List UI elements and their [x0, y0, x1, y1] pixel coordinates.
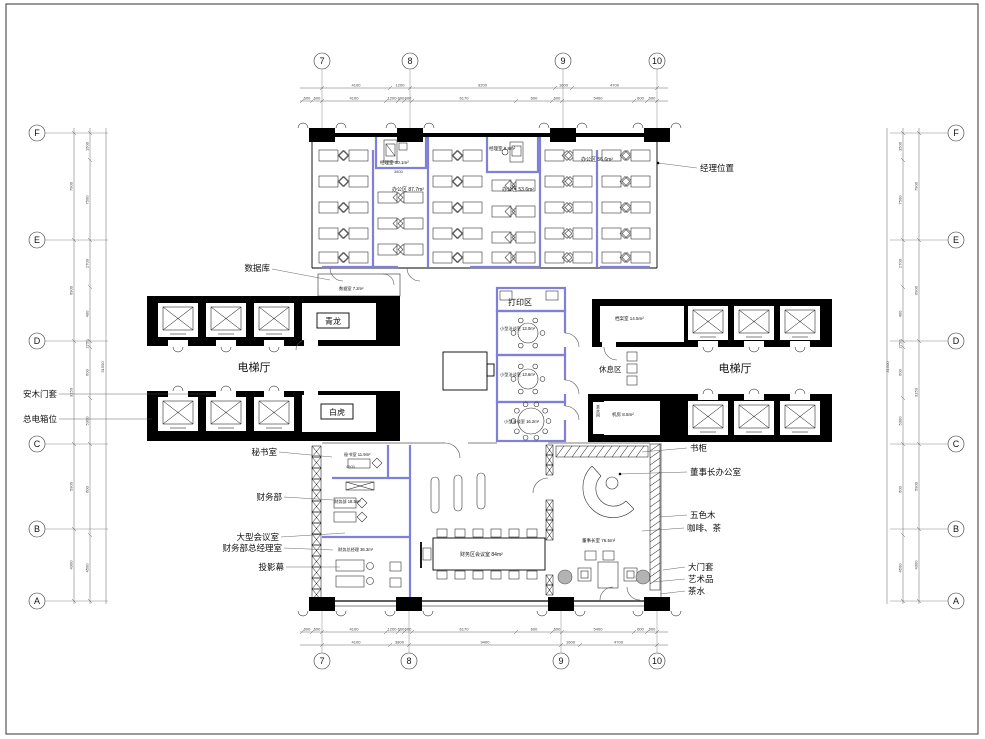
elevator-hall-left-label: 电梯厅 — [238, 361, 271, 374]
workstation-desk — [319, 228, 338, 239]
chair — [514, 408, 519, 413]
dimension-text: 3800 — [395, 640, 405, 645]
annotation: 投影幕 — [258, 562, 284, 572]
dimension-text: 9400 — [481, 640, 491, 645]
workstation-desk — [378, 218, 397, 229]
chair — [518, 318, 523, 323]
workstation-desk — [404, 218, 423, 229]
baihu-label: 白虎 — [329, 407, 345, 417]
workstation-desk — [602, 252, 621, 263]
door-swing — [386, 123, 396, 128]
grid-bubble-label: E — [34, 235, 40, 245]
artwork-icon — [636, 570, 650, 584]
leader-line — [642, 528, 684, 531]
hatch — [650, 570, 660, 577]
workstation-desk — [404, 244, 423, 255]
door-gap — [304, 340, 318, 346]
leader-line — [660, 591, 685, 594]
seat — [627, 376, 637, 385]
door-swing — [269, 347, 279, 352]
rest-area-label: 休息区 — [599, 364, 622, 374]
workstation-desk — [433, 150, 452, 161]
chair — [543, 429, 548, 434]
annotation: 大型会议室 — [236, 532, 279, 542]
chair — [453, 177, 463, 187]
dimension-text: 600 — [531, 627, 538, 632]
dimension-text: 7500 — [85, 195, 90, 205]
chair — [509, 571, 519, 579]
chair — [452, 253, 462, 263]
chair — [437, 529, 447, 537]
grid-bubble-label: 9 — [560, 56, 565, 66]
chair — [523, 435, 528, 440]
room-label: 档案室 14.5m² — [615, 315, 644, 322]
chair — [527, 529, 537, 537]
dimension-text: 2750 — [898, 339, 903, 349]
chair — [453, 253, 463, 263]
elevator-cell — [158, 397, 198, 431]
chair — [533, 343, 538, 348]
artwork-icon — [558, 570, 572, 584]
printer — [546, 291, 558, 300]
workstation-desk — [545, 150, 564, 161]
chair — [473, 529, 483, 537]
workstation-desk — [463, 176, 482, 187]
hatch — [650, 458, 660, 465]
elevator-hall-right-label: 电梯厅 — [719, 362, 752, 375]
dimension-text: 1600 — [566, 640, 576, 645]
room-label: 办公区 56.6m² — [581, 156, 613, 163]
workstation-desk — [492, 232, 511, 243]
grid-bubble-label: B — [953, 524, 959, 534]
hatch — [650, 528, 660, 535]
room-label: 小型洽谈室 16.2m² — [504, 418, 540, 425]
dimension-text: 600 — [531, 96, 538, 101]
dimension-text: 5900 — [914, 481, 919, 491]
seat — [627, 364, 637, 373]
dimension-text: 600 — [637, 96, 644, 101]
dimension-text: 1200 — [396, 83, 406, 88]
office-north-wall — [312, 133, 657, 137]
leader-line — [660, 515, 687, 517]
door-swing — [749, 389, 759, 394]
leader-line — [653, 579, 685, 582]
chair — [518, 343, 523, 348]
leader-line — [658, 163, 697, 168]
chair — [338, 229, 348, 239]
grid-bubble-label: C — [34, 439, 41, 449]
chair — [453, 151, 463, 161]
hatch — [650, 465, 660, 472]
chair — [399, 143, 407, 150]
workstation-desk — [349, 228, 368, 239]
dimension-text: 7900 — [914, 181, 919, 191]
grid-bubble-label: B — [34, 524, 40, 534]
chair — [452, 177, 462, 187]
hatch — [650, 493, 660, 500]
chair — [533, 389, 538, 394]
room-label: 经理室 8.8m² — [489, 145, 516, 151]
dimension-text: 600 — [314, 627, 321, 632]
door-swing — [385, 611, 395, 616]
annotation: 财务部总经理室 — [222, 543, 282, 553]
annotation: 财务部 — [256, 492, 282, 502]
door-swing — [633, 611, 643, 616]
meeting-room-1-walls — [497, 311, 565, 355]
workstation-desk — [349, 202, 368, 213]
armchair-cushion — [581, 571, 588, 578]
door-swing — [173, 347, 183, 352]
grid-bubble-label: 10 — [652, 656, 662, 666]
grid-bubble-label: 9 — [558, 656, 563, 666]
door-swing — [671, 611, 681, 616]
dimension-text: 4100 — [352, 83, 362, 88]
leader-dot — [657, 162, 660, 165]
hatch — [650, 514, 660, 521]
door-gap — [790, 341, 810, 347]
door-gap — [264, 340, 284, 347]
dimension-text: 3150 — [914, 387, 919, 397]
grid-bubble-label: F — [953, 128, 959, 138]
chair — [390, 578, 401, 587]
chair — [540, 377, 545, 382]
chair — [339, 151, 349, 161]
hatch — [650, 563, 660, 570]
dimension-text: 1600 — [559, 83, 569, 88]
annotation: 艺术品 — [688, 574, 714, 584]
door-gap — [698, 341, 718, 347]
chair — [603, 551, 614, 560]
dimension-text: 600 — [649, 96, 656, 101]
chair — [543, 408, 548, 413]
workstation-desk — [516, 206, 535, 217]
room-label: 财务部 18.5m² — [334, 498, 361, 505]
workstation-desk — [602, 228, 621, 239]
dimension-text: 2750 — [85, 339, 90, 349]
hatch — [650, 486, 660, 493]
workstation-desk — [433, 202, 452, 213]
meeting-room-2-walls — [497, 355, 565, 402]
elevator-cell — [734, 401, 774, 435]
dimension-text: 1500 — [898, 141, 903, 151]
door-swing — [173, 386, 183, 391]
workstation-desk — [545, 252, 564, 263]
hatch — [650, 549, 660, 556]
elevator-cell — [688, 401, 728, 435]
dimension-text: 4500 — [85, 563, 90, 573]
workstation-desk — [631, 228, 650, 239]
tea-room-label: 茶水间 — [596, 404, 601, 418]
grid-bubble-label: 8 — [407, 56, 412, 66]
chair — [338, 151, 348, 161]
column — [550, 128, 576, 142]
workstation-desk — [573, 202, 592, 213]
workstation-desk — [433, 252, 452, 263]
dimension-text: 3150 — [69, 387, 74, 397]
room-label: 小型洽谈室 13.6m² — [500, 371, 536, 378]
column — [396, 597, 422, 611]
door-arc — [533, 478, 548, 493]
workstation-desk — [319, 202, 338, 213]
annotation: 经理位置 — [700, 163, 735, 173]
workstation-desk — [631, 150, 650, 161]
workstation-desk — [349, 150, 368, 161]
dimension-text: 600 — [649, 627, 656, 632]
dimension-text: 600 — [304, 627, 311, 632]
grid-bubble-label: 8 — [406, 656, 411, 666]
elevator-cell — [688, 306, 728, 340]
dimension-text: 600 — [898, 368, 903, 375]
dimension-text: 4700 — [610, 83, 620, 88]
dimension-text: 600 — [304, 96, 311, 101]
dimension-text: 600 — [898, 485, 903, 492]
annotation: 茶水 — [688, 586, 706, 596]
machine-room — [604, 401, 660, 435]
annotation: 总电箱位 — [23, 414, 58, 424]
bookcase — [556, 446, 648, 457]
dimension-text: 400 — [85, 310, 90, 317]
chair — [452, 203, 462, 213]
door-gap — [216, 391, 236, 398]
dimension-text: 1200 — [388, 627, 398, 632]
annotation: 董事长办公室 — [690, 467, 742, 477]
annotation: 秘书室 — [251, 447, 277, 457]
dimension-text: 600 — [554, 627, 561, 632]
chair — [509, 529, 519, 537]
chair — [367, 563, 374, 570]
dimension-text: 4300 — [914, 560, 919, 570]
hatch — [650, 451, 660, 458]
annotation: 五色木 — [690, 510, 716, 520]
column — [644, 597, 670, 611]
door-swing — [671, 123, 681, 128]
annotation: 咖啡、茶 — [687, 523, 722, 533]
elevator-cell — [206, 397, 246, 431]
drawing-border — [6, 4, 978, 734]
workstation-desk — [545, 176, 564, 187]
desk — [336, 560, 364, 571]
door-swing — [703, 347, 713, 352]
dimension-text: 600 — [85, 368, 90, 375]
dimension-text: 9200 — [478, 83, 488, 88]
door-gap — [698, 394, 718, 400]
elevator-cell — [254, 303, 294, 337]
hatch — [650, 479, 660, 486]
door-swing — [423, 611, 433, 616]
dimension-text: 6170 — [460, 96, 470, 101]
room-label: 机房 8.5m² — [612, 411, 634, 418]
elevator-cell — [158, 303, 198, 337]
room-label: 经理室 10.1m² — [380, 159, 409, 165]
chair — [338, 177, 348, 187]
seat — [627, 352, 637, 361]
door-gap — [264, 391, 284, 398]
elevator-cell — [254, 397, 294, 431]
door-arc — [565, 333, 579, 347]
grid-bubble-label: 10 — [652, 56, 662, 66]
workstation-desk — [545, 228, 564, 239]
grid-bubble-label: A — [34, 596, 40, 606]
leader-line — [663, 567, 685, 570]
chair — [453, 229, 463, 239]
dimension-text: 2700 — [85, 258, 90, 268]
leader-dot — [619, 473, 622, 476]
hatch — [650, 577, 660, 584]
workstation-desk — [573, 176, 592, 187]
door-swing — [269, 386, 279, 391]
chair — [491, 571, 501, 579]
workstation-desk — [378, 244, 397, 255]
door-swing — [795, 347, 805, 352]
grid-bubble-label: 7 — [319, 656, 324, 666]
workstation-desk — [631, 202, 650, 213]
door-arc — [407, 268, 420, 281]
column — [397, 128, 423, 142]
dimension-text: 1200 — [388, 96, 398, 101]
workstation-desk — [378, 192, 397, 203]
room-label: 董事长室 76.5m² — [582, 537, 616, 544]
dimension-text: 6900 — [914, 285, 919, 295]
column — [644, 128, 670, 142]
grid-bubble-label: A — [953, 596, 959, 606]
dimension-text: 600 — [405, 627, 412, 632]
grid-bubble-label: 7 — [319, 56, 324, 66]
armchair-cushion — [627, 571, 634, 578]
workstation-desk — [433, 176, 452, 187]
door-swing — [633, 123, 643, 128]
chair — [514, 429, 519, 434]
hatch — [650, 542, 660, 549]
column — [548, 597, 574, 611]
door-gap — [168, 340, 188, 347]
room-label: 财务区会议室 84m² — [460, 551, 503, 558]
door-gap — [602, 341, 616, 347]
chair — [338, 253, 348, 263]
chair — [423, 548, 431, 560]
archive-room — [600, 306, 684, 342]
grid-bubble-label: D — [953, 336, 960, 346]
chair — [534, 435, 539, 440]
workstation-desk — [516, 252, 535, 263]
workstation-desk — [349, 252, 368, 263]
chair — [339, 253, 349, 263]
room-label: 秘书室 11.9m² — [344, 451, 371, 458]
annotation: 大门套 — [688, 562, 714, 572]
chair — [452, 229, 462, 239]
dimension-text: 5400 — [594, 627, 604, 632]
side-table — [606, 477, 618, 489]
door-swing — [336, 611, 346, 616]
grid-bubble-label: E — [953, 235, 959, 245]
dimension-text: 600 — [637, 627, 644, 632]
chair — [533, 318, 538, 323]
door-swing — [577, 123, 587, 128]
elevator-cell — [206, 303, 246, 337]
dimension-text: 7500 — [898, 195, 903, 205]
floor-plan-page: 7788991010FFEEDDCCBBAA 41001200920016004… — [0, 0, 985, 739]
qinglong-label: 青龙 — [325, 316, 341, 326]
workstation-desk — [631, 176, 650, 187]
door-arc — [565, 406, 579, 420]
chair — [339, 203, 349, 213]
entrance-door-arc — [600, 587, 613, 600]
dimension-text: 4700 — [614, 640, 624, 645]
workstation-desk — [463, 252, 482, 263]
entrance-door-arc — [627, 587, 640, 600]
dimension-text: 1500 — [85, 141, 90, 151]
grid-bubble-label: D — [34, 336, 41, 346]
dimension-text: 6900 — [69, 285, 74, 295]
grid-bubble-label: C — [953, 439, 960, 449]
door-arc — [565, 380, 579, 394]
door-swing — [539, 123, 549, 128]
dimension-text: 31500 — [100, 361, 105, 373]
hatch — [650, 535, 660, 542]
data-room — [318, 274, 400, 296]
chair — [455, 529, 465, 537]
door-swing — [537, 611, 547, 616]
dimension-text: 4100 — [350, 96, 360, 101]
grid-bubble-label: F — [34, 128, 40, 138]
workstation-desk — [602, 202, 621, 213]
leader-line — [279, 452, 332, 457]
workstation-desk — [319, 176, 338, 187]
chair — [540, 331, 545, 336]
desk — [336, 576, 364, 587]
leader-line — [620, 472, 687, 474]
door-swing — [221, 386, 231, 391]
hatch — [650, 556, 660, 563]
dimension-text: 600 — [405, 96, 412, 101]
door-swing — [298, 611, 308, 616]
chair — [533, 364, 538, 369]
armchair — [578, 568, 591, 581]
door-gap — [744, 341, 764, 347]
workstation-desk — [631, 252, 650, 263]
chair — [473, 571, 483, 579]
dim-label: 3800 — [394, 169, 404, 174]
room-label: 办公区 87.7m² — [392, 186, 424, 193]
workstation-desk — [463, 150, 482, 161]
dimension-text: 600 — [314, 96, 321, 101]
deco-panel — [431, 477, 439, 513]
hatch — [650, 500, 660, 507]
workstation-desk — [545, 202, 564, 213]
leader-line — [284, 497, 333, 500]
armchair — [624, 568, 637, 581]
elevator-cell — [780, 401, 820, 435]
door-swing — [749, 347, 759, 352]
elevator-cell — [780, 306, 820, 340]
leader-line — [642, 448, 687, 452]
annotation: 书柜 — [690, 443, 708, 453]
dimension-text: 6170 — [460, 627, 470, 632]
room-label: 小型洽谈室 13.0m² — [500, 325, 536, 332]
chair — [453, 203, 463, 213]
annotation: 数据库 — [244, 263, 270, 273]
door-gap — [744, 394, 764, 400]
dimension-text: 7900 — [69, 181, 74, 191]
chair — [357, 512, 367, 522]
dimension-text: 5900 — [69, 481, 74, 491]
workstation-desk — [492, 252, 511, 263]
chair — [585, 551, 596, 560]
dimension-text: 31500 — [885, 361, 890, 373]
workstation-desk — [433, 228, 452, 239]
dimension-text: 5300 — [85, 416, 90, 426]
dimension-text: 600 — [85, 485, 90, 492]
dim-label: 4500 — [346, 464, 356, 469]
